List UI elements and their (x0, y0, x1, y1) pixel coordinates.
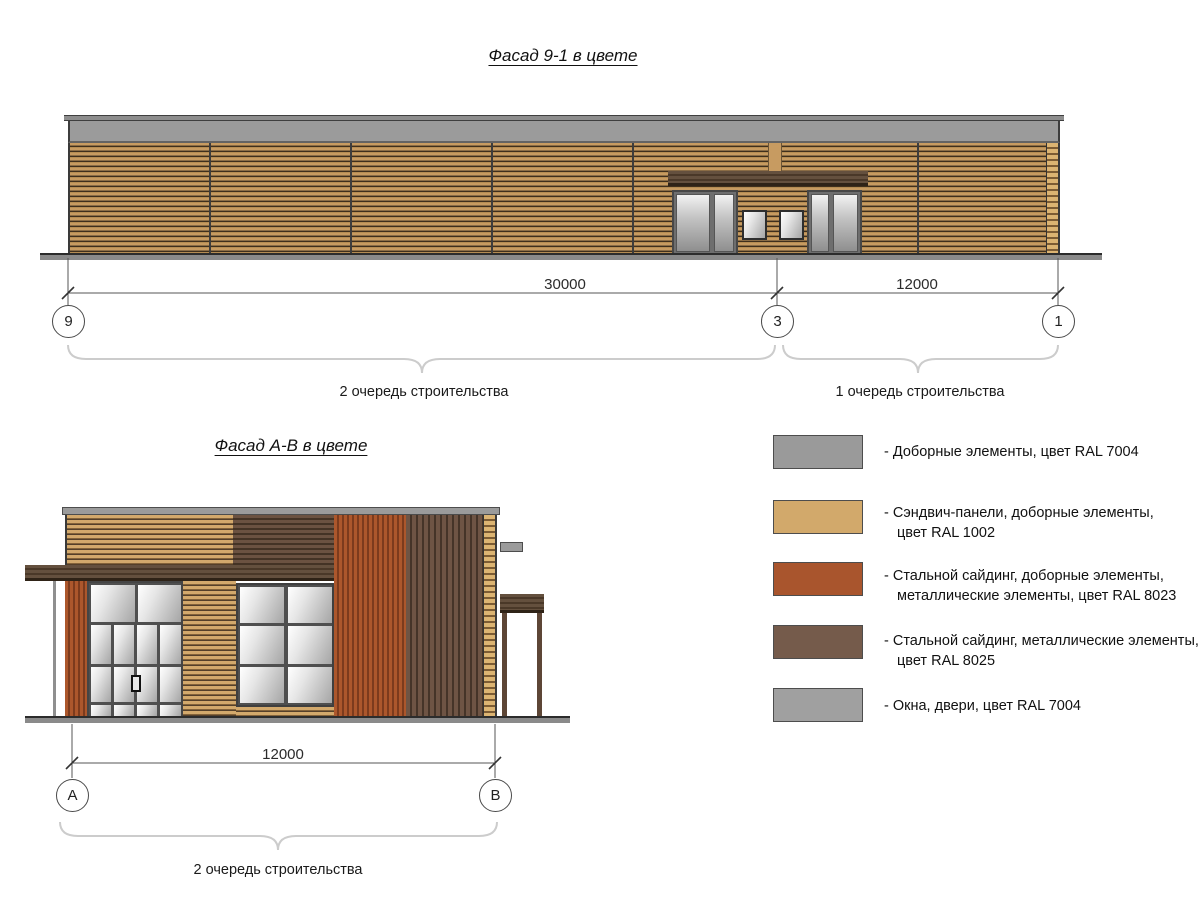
dim-30000: 30000 (544, 276, 586, 293)
dimension-lines-top (0, 250, 1200, 325)
corner-trim (483, 515, 495, 718)
axis-marker-a: А (56, 779, 89, 812)
legend-swatch-ral8025 (773, 625, 863, 659)
legend-swatch-ral7004 (773, 435, 863, 469)
door-handle (131, 675, 141, 692)
entrance-doors-right (807, 190, 862, 256)
tan-siding-band (67, 515, 233, 572)
stage-1-label-top: 1 очередь строительства (835, 384, 1004, 400)
wall-edge-right (495, 515, 497, 718)
panel-joint (917, 143, 919, 253)
glass-pane (240, 626, 284, 664)
legend-label: - Доборные элементы, цвет RAL 7004 (884, 443, 1200, 463)
sandwich-panel-siding (68, 143, 1060, 253)
entrance-canopy (668, 171, 868, 186)
gutter-outlet (500, 542, 523, 552)
legend-swatch-windows-ral7004 (773, 688, 863, 722)
tan-siding-strip (183, 581, 236, 718)
legend-label: - Стальной сайдинг, доборные элементы, м… (884, 567, 1200, 606)
dim-12000-top: 12000 (896, 276, 938, 293)
entrance-window (742, 210, 767, 240)
glass-pane (114, 625, 134, 664)
porch-canopy (500, 594, 544, 613)
glazed-entrance (87, 581, 183, 718)
glass-pane (137, 625, 157, 664)
dark-siding-band (233, 515, 334, 572)
stage-2-label-top: 2 очередь строительства (339, 384, 508, 400)
axis-marker-9: 9 (52, 305, 85, 338)
door-leaf (811, 194, 829, 252)
porch-post (537, 613, 542, 716)
orange-siding-strip (65, 581, 87, 718)
glass-pane (138, 585, 181, 622)
glass-pane (288, 626, 332, 664)
glass-pane (288, 667, 332, 703)
orange-steel-siding (334, 515, 406, 718)
axis-trim-strip (768, 143, 782, 173)
door-leaf (714, 194, 734, 252)
legend-label: - Сэндвич-панели, доборные элементы, цве… (884, 504, 1200, 543)
dimension-lines-bottom (0, 712, 620, 782)
axis-marker-b: В (479, 779, 512, 812)
glass-pane (91, 585, 135, 622)
entrance-window (779, 210, 804, 240)
legend-item: - Сэндвич-панели, доборные элементы, цве… (773, 500, 1200, 534)
axis-marker-1: 1 (1042, 305, 1075, 338)
dim-12000-bottom: 12000 (262, 746, 304, 763)
legend-label: - Стальной сайдинг, металлические элемен… (884, 632, 1200, 671)
legend-item: - Окна, двери, цвет RAL 7004 (773, 688, 1200, 722)
canopy-post (53, 581, 56, 716)
facade-9-1-elevation (68, 115, 1060, 253)
glass-pane (240, 667, 284, 703)
entrance-doors-left (672, 190, 738, 256)
legend-swatch-ral8023 (773, 562, 863, 596)
glass-pane (160, 667, 181, 702)
glass-pane (288, 587, 332, 623)
parapet-band (68, 121, 1060, 143)
legend-item: - Доборные элементы, цвет RAL 7004 (773, 435, 1200, 469)
stage-2-label-bottom: 2 очередь строительства (193, 862, 362, 878)
stage-braces-top (0, 343, 1200, 383)
roof-cap (62, 507, 500, 515)
stage-brace-bottom (0, 820, 620, 860)
panel-joint (350, 143, 352, 253)
facade-a-b-elevation (25, 507, 585, 723)
legend-swatch-ral1002 (773, 500, 863, 534)
color-legend: - Доборные элементы, цвет RAL 7004 - Сэн… (773, 435, 1200, 735)
drawing-sheet: Фасад 9-1 в цвете (0, 0, 1200, 900)
facade-a-b-title: Фасад А-В в цвете (215, 436, 368, 456)
door-leaf (833, 194, 858, 252)
panel-joint (632, 143, 634, 253)
facade-9-1-title: Фасад 9-1 в цвете (488, 46, 637, 66)
glass-pane (160, 625, 181, 664)
porch-post (502, 613, 507, 716)
glass-pane (240, 587, 284, 623)
glass-pane (91, 667, 111, 702)
panel-joint (209, 143, 211, 253)
door-leaf (676, 194, 710, 252)
legend-item: - Стальной сайдинг, доборные элементы, м… (773, 562, 1200, 596)
panel-joint (491, 143, 493, 253)
legend-item: - Стальной сайдинг, металлические элемен… (773, 625, 1200, 659)
legend-label: - Окна, двери, цвет RAL 7004 (884, 697, 1200, 717)
entrance-canopy (25, 565, 334, 581)
corner-trim (1046, 143, 1058, 253)
axis-marker-3: 3 (761, 305, 794, 338)
dark-steel-siding (406, 515, 483, 718)
glass-pane (91, 625, 111, 664)
large-window (236, 583, 334, 707)
